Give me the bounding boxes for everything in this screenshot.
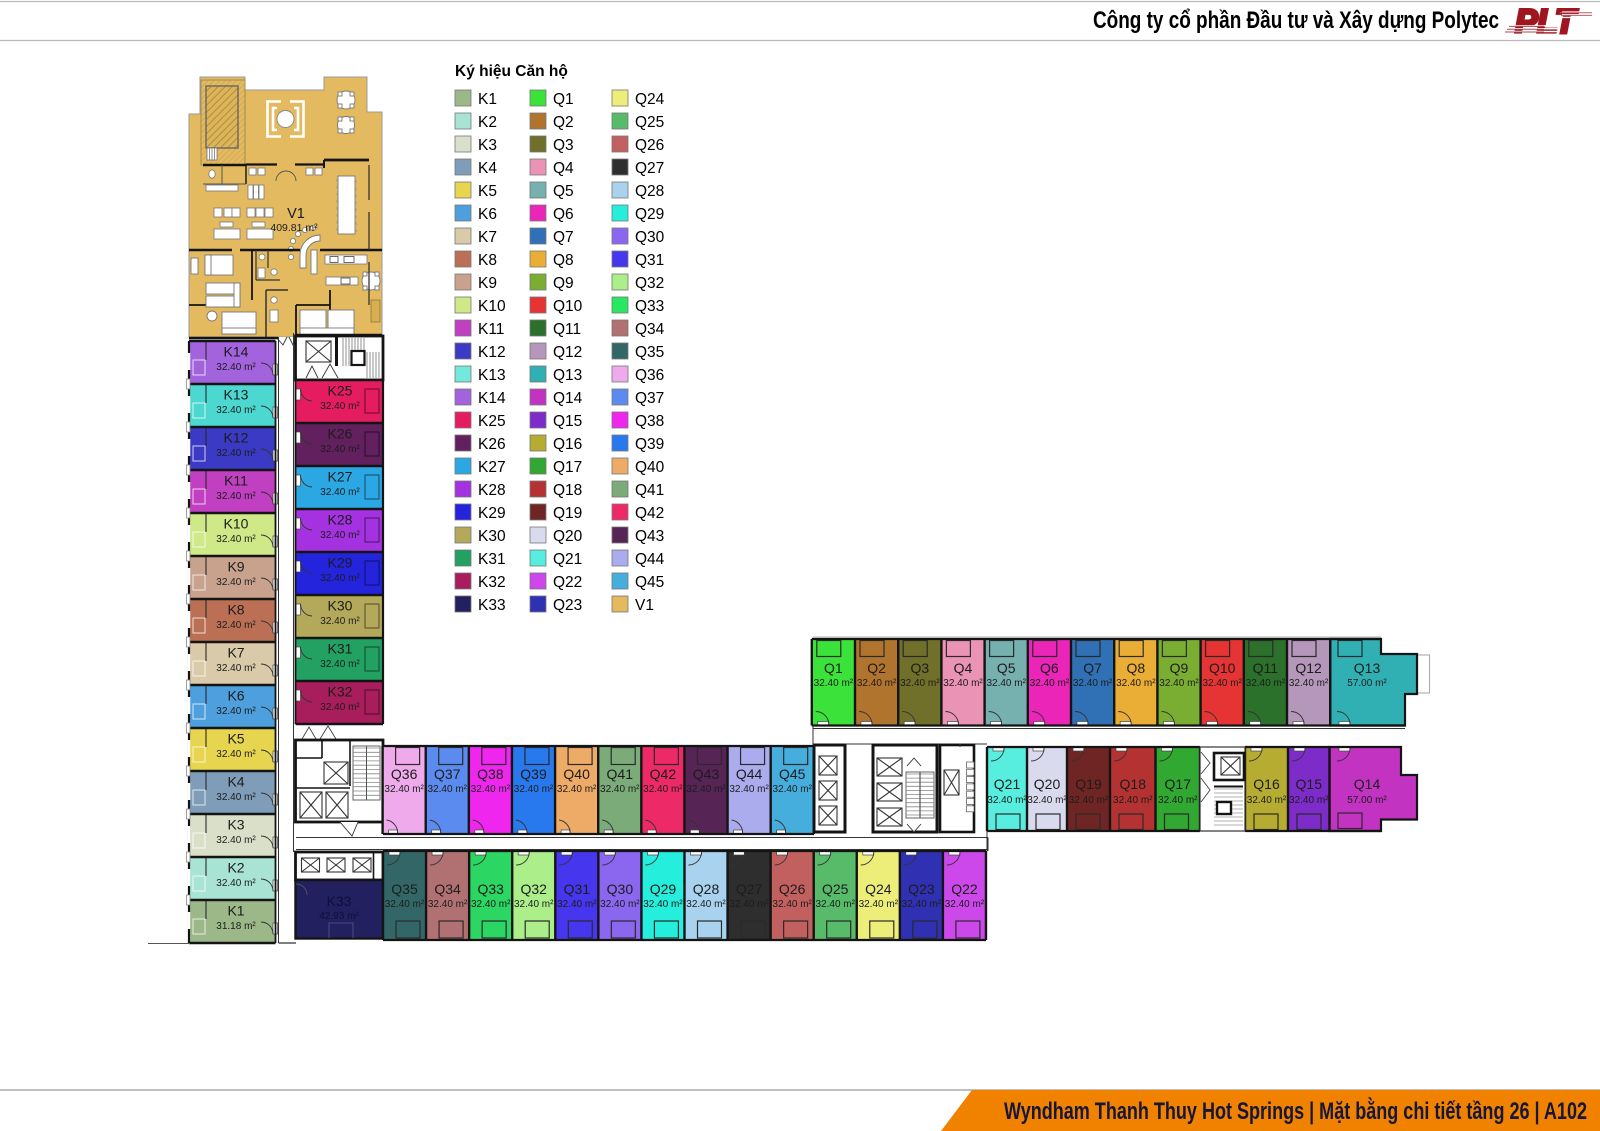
svg-text:32.40 m²: 32.40 m² [320, 444, 360, 455]
svg-text:K1: K1 [227, 903, 244, 919]
svg-text:32.40 m²: 32.40 m² [987, 795, 1027, 806]
svg-text:Q14: Q14 [1354, 776, 1381, 792]
svg-text:32.40 m²: 32.40 m² [320, 702, 360, 713]
svg-text:Q13: Q13 [1354, 660, 1381, 676]
svg-text:32.40 m²: 32.40 m² [1030, 678, 1070, 689]
svg-text:K10: K10 [478, 298, 506, 315]
svg-text:K14: K14 [478, 390, 506, 407]
svg-text:Q6: Q6 [553, 206, 574, 223]
svg-text:K12: K12 [478, 344, 506, 361]
svg-text:Q28: Q28 [635, 183, 664, 200]
svg-text:32.40 m²: 32.40 m² [320, 616, 360, 627]
svg-text:32.40 m²: 32.40 m² [1289, 795, 1329, 806]
svg-text:Q40: Q40 [563, 766, 590, 782]
svg-text:32.40 m²: 32.40 m² [216, 749, 256, 760]
svg-text:32.40 m²: 32.40 m² [1116, 678, 1156, 689]
svg-text:32.40 m²: 32.40 m² [773, 784, 813, 795]
svg-text:32.40 m²: 32.40 m² [1246, 678, 1286, 689]
svg-text:32.40 m²: 32.40 m² [428, 899, 468, 910]
svg-text:32.40 m²: 32.40 m² [986, 678, 1026, 689]
svg-text:Q24: Q24 [865, 881, 892, 897]
svg-text:Q40: Q40 [635, 459, 665, 476]
svg-text:32.40 m²: 32.40 m² [772, 899, 812, 910]
svg-text:32.40 m²: 32.40 m² [1247, 795, 1287, 806]
svg-text:K7: K7 [478, 229, 497, 246]
svg-text:32.40 m²: 32.40 m² [686, 899, 726, 910]
svg-text:409.81 m²: 409.81 m² [270, 222, 318, 234]
svg-text:32.40 m²: 32.40 m² [900, 678, 940, 689]
svg-text:Q3: Q3 [910, 660, 929, 676]
svg-text:Q30: Q30 [607, 881, 634, 897]
svg-text:32.40 m²: 32.40 m² [428, 784, 468, 795]
svg-text:Q45: Q45 [779, 766, 806, 782]
svg-text:Q34: Q34 [434, 881, 461, 897]
svg-text:32.40 m²: 32.40 m² [1159, 678, 1199, 689]
svg-text:Q28: Q28 [693, 881, 720, 897]
svg-text:Q22: Q22 [951, 881, 978, 897]
svg-text:32.40 m²: 32.40 m² [216, 620, 256, 631]
svg-text:Q26: Q26 [779, 881, 806, 897]
svg-text:Q1: Q1 [553, 91, 574, 108]
svg-text:Q26: Q26 [635, 137, 664, 154]
svg-text:Q8: Q8 [1126, 660, 1145, 676]
svg-text:Q27: Q27 [736, 881, 763, 897]
svg-text:Q18: Q18 [553, 482, 582, 499]
svg-text:K29: K29 [328, 555, 353, 571]
svg-text:K33: K33 [478, 597, 506, 614]
svg-text:Q17: Q17 [1165, 776, 1192, 792]
svg-text:K5: K5 [227, 731, 244, 747]
svg-text:32.40 m²: 32.40 m² [216, 706, 256, 717]
svg-text:32.40 m²: 32.40 m² [471, 784, 511, 795]
svg-text:K25: K25 [478, 413, 506, 430]
svg-text:Q3: Q3 [553, 137, 574, 154]
svg-text:K13: K13 [478, 367, 506, 384]
svg-text:K9: K9 [478, 275, 497, 292]
svg-text:Q17: Q17 [553, 459, 582, 476]
svg-text:Q11: Q11 [1253, 660, 1279, 676]
svg-text:32.40 m²: 32.40 m² [643, 784, 683, 795]
svg-text:32.40 m²: 32.40 m² [216, 577, 256, 588]
svg-text:Q4: Q4 [553, 160, 574, 177]
svg-text:Q15: Q15 [553, 413, 582, 430]
svg-text:Q37: Q37 [434, 766, 461, 782]
svg-text:K2: K2 [478, 114, 497, 131]
svg-text:Q31: Q31 [564, 881, 591, 897]
svg-text:Q44: Q44 [635, 551, 665, 568]
svg-text:K8: K8 [227, 602, 244, 618]
svg-text:Ký hiệu Căn hộ: Ký hiệu Căn hộ [455, 63, 568, 80]
svg-text:Q16: Q16 [553, 436, 582, 453]
svg-text:32.40 m²: 32.40 m² [216, 448, 256, 459]
svg-text:K3: K3 [478, 137, 497, 154]
svg-text:Q4: Q4 [954, 660, 973, 676]
svg-text:K4: K4 [478, 160, 497, 177]
svg-text:Q1: Q1 [824, 660, 843, 676]
svg-text:K1: K1 [478, 91, 497, 108]
svg-text:K26: K26 [328, 426, 353, 442]
svg-text:Q33: Q33 [477, 881, 504, 897]
svg-text:Q34: Q34 [635, 321, 665, 338]
svg-text:32.40 m²: 32.40 m² [216, 878, 256, 889]
svg-text:31.18 m²: 31.18 m² [216, 921, 256, 932]
svg-text:32.40 m²: 32.40 m² [216, 835, 256, 846]
svg-text:32.40 m²: 32.40 m² [385, 899, 425, 910]
svg-text:Q9: Q9 [1170, 660, 1189, 676]
svg-text:32.40 m²: 32.40 m² [1158, 795, 1198, 806]
svg-text:Q22: Q22 [553, 574, 582, 591]
svg-text:K4: K4 [227, 774, 244, 790]
svg-text:K25: K25 [328, 383, 353, 399]
svg-text:57.00 m²: 57.00 m² [1347, 795, 1387, 806]
svg-text:K11: K11 [224, 473, 248, 489]
svg-text:Q36: Q36 [391, 766, 418, 782]
svg-text:Q29: Q29 [650, 881, 677, 897]
svg-text:32.40 m²: 32.40 m² [729, 899, 769, 910]
svg-text:Q31: Q31 [635, 252, 664, 269]
svg-text:Q44: Q44 [736, 766, 763, 782]
svg-text:Q23: Q23 [908, 881, 935, 897]
svg-text:K31: K31 [478, 551, 506, 568]
svg-text:K3: K3 [227, 817, 244, 833]
svg-text:32.40 m²: 32.40 m² [216, 663, 256, 674]
svg-text:32.40 m²: 32.40 m² [814, 678, 854, 689]
svg-text:K7: K7 [227, 645, 244, 661]
svg-text:Q7: Q7 [553, 229, 574, 246]
svg-text:32.40 m²: 32.40 m² [216, 792, 256, 803]
svg-text:42.93 m²: 42.93 m² [319, 911, 359, 922]
svg-text:Q2: Q2 [553, 114, 574, 131]
svg-text:Q5: Q5 [997, 660, 1016, 676]
svg-text:32.40 m²: 32.40 m² [557, 899, 597, 910]
svg-text:Q6: Q6 [1040, 660, 1059, 676]
svg-text:Q9: Q9 [553, 275, 574, 292]
svg-text:32.40 m²: 32.40 m² [320, 573, 360, 584]
svg-text:32.40 m²: 32.40 m² [902, 899, 942, 910]
svg-text:K29: K29 [478, 505, 506, 522]
svg-text:V1: V1 [635, 597, 654, 614]
svg-text:K26: K26 [478, 436, 506, 453]
svg-text:K11: K11 [478, 321, 504, 338]
svg-text:Q25: Q25 [635, 114, 664, 131]
svg-text:Q43: Q43 [635, 528, 664, 545]
svg-text:Q37: Q37 [635, 390, 664, 407]
svg-text:K9: K9 [227, 559, 244, 575]
svg-text:32.40 m²: 32.40 m² [384, 784, 424, 795]
svg-text:Q10: Q10 [1209, 660, 1236, 676]
svg-text:K2: K2 [227, 860, 244, 876]
svg-text:32.40 m²: 32.40 m² [943, 678, 983, 689]
svg-text:Q45: Q45 [635, 574, 664, 591]
svg-text:K27: K27 [328, 469, 353, 485]
svg-text:32.40 m²: 32.40 m² [686, 784, 726, 795]
svg-text:K32: K32 [478, 574, 506, 591]
svg-text:32.40 m²: 32.40 m² [216, 491, 256, 502]
svg-text:Q30: Q30 [635, 229, 665, 246]
svg-text:32.40 m²: 32.40 m² [1202, 678, 1242, 689]
svg-text:K5: K5 [478, 183, 497, 200]
svg-text:Q18: Q18 [1120, 776, 1147, 792]
svg-text:Q35: Q35 [391, 881, 418, 897]
svg-text:32.40 m²: 32.40 m² [557, 784, 597, 795]
svg-text:Q39: Q39 [520, 766, 547, 782]
svg-text:57.00 m²: 57.00 m² [1347, 678, 1387, 689]
svg-text:Q2: Q2 [867, 660, 886, 676]
svg-text:32.40 m²: 32.40 m² [1027, 795, 1067, 806]
svg-text:Q23: Q23 [553, 597, 582, 614]
svg-text:K8: K8 [478, 252, 497, 269]
svg-text:Q25: Q25 [822, 881, 849, 897]
svg-text:K27: K27 [478, 459, 506, 476]
svg-text:Q42: Q42 [650, 766, 677, 782]
svg-text:Q29: Q29 [635, 206, 664, 223]
svg-text:Q32: Q32 [521, 881, 548, 897]
svg-text:32.40 m²: 32.40 m² [1069, 795, 1109, 806]
svg-text:32.40 m²: 32.40 m² [320, 659, 360, 670]
svg-text:Q35: Q35 [635, 344, 664, 361]
svg-text:Q42: Q42 [635, 505, 664, 522]
svg-text:K6: K6 [227, 688, 244, 704]
svg-text:Q8: Q8 [553, 252, 574, 269]
svg-text:Q11: Q11 [553, 321, 581, 338]
svg-text:32.40 m²: 32.40 m² [216, 362, 256, 373]
svg-text:Q32: Q32 [635, 275, 664, 292]
svg-text:32.40 m²: 32.40 m² [471, 899, 511, 910]
svg-text:Q43: Q43 [693, 766, 720, 782]
svg-text:32.40 m²: 32.40 m² [320, 401, 360, 412]
svg-text:Q41: Q41 [607, 766, 634, 782]
svg-text:32.40 m²: 32.40 m² [216, 534, 256, 545]
svg-text:Q21: Q21 [553, 551, 582, 568]
svg-text:Q15: Q15 [1296, 776, 1323, 792]
svg-text:Q12: Q12 [1295, 660, 1322, 676]
svg-text:32.40 m²: 32.40 m² [600, 784, 640, 795]
svg-text:32.40 m²: 32.40 m² [729, 784, 769, 795]
svg-text:Q21: Q21 [994, 776, 1021, 792]
svg-text:32.40 m²: 32.40 m² [514, 899, 554, 910]
svg-text:Q16: Q16 [1253, 776, 1280, 792]
svg-text:Q39: Q39 [635, 436, 664, 453]
svg-text:32.40 m²: 32.40 m² [1289, 678, 1329, 689]
svg-text:Q10: Q10 [553, 298, 583, 315]
svg-text:Q38: Q38 [635, 413, 664, 430]
svg-text:Q20: Q20 [1034, 776, 1061, 792]
svg-text:32.40 m²: 32.40 m² [514, 784, 554, 795]
svg-text:32.40 m²: 32.40 m² [216, 405, 256, 416]
svg-text:Q19: Q19 [1075, 776, 1102, 792]
svg-text:K28: K28 [478, 482, 506, 499]
svg-text:32.40 m²: 32.40 m² [643, 899, 683, 910]
svg-text:32.40 m²: 32.40 m² [859, 899, 899, 910]
svg-text:K6: K6 [478, 206, 497, 223]
svg-text:Q5: Q5 [553, 183, 574, 200]
svg-text:K28: K28 [328, 512, 353, 528]
svg-text:Q14: Q14 [553, 390, 583, 407]
svg-text:32.40 m²: 32.40 m² [857, 678, 897, 689]
svg-text:K13: K13 [224, 387, 249, 403]
svg-text:Q27: Q27 [635, 160, 664, 177]
svg-text:K30: K30 [478, 528, 506, 545]
svg-text:Q38: Q38 [477, 766, 504, 782]
svg-text:Q20: Q20 [553, 528, 583, 545]
svg-text:32.40 m²: 32.40 m² [600, 899, 640, 910]
svg-text:Wyndham Thanh Thuy Hot Springs: Wyndham Thanh Thuy Hot Springs | Mặt bằn… [1004, 1097, 1587, 1125]
svg-text:K31: K31 [328, 641, 353, 657]
svg-text:Q33: Q33 [635, 298, 664, 315]
svg-text:Q24: Q24 [635, 91, 665, 108]
svg-text:32.40 m²: 32.40 m² [1073, 678, 1113, 689]
svg-text:Q12: Q12 [553, 344, 582, 361]
svg-text:K33: K33 [327, 893, 352, 909]
svg-text:32.40 m²: 32.40 m² [320, 487, 360, 498]
svg-text:K32: K32 [328, 684, 353, 700]
svg-text:32.40 m²: 32.40 m² [945, 899, 985, 910]
svg-text:32.40 m²: 32.40 m² [816, 899, 856, 910]
svg-text:V1: V1 [287, 206, 305, 222]
svg-text:K12: K12 [224, 430, 249, 446]
svg-text:Q13: Q13 [553, 367, 582, 384]
svg-text:32.40 m²: 32.40 m² [320, 530, 360, 541]
svg-text:Công ty cổ phần Đầu tư và Xây: Công ty cổ phần Đầu tư và Xây dựng Polyt… [1093, 7, 1499, 34]
svg-text:PLT: PLT [1515, 3, 1579, 41]
svg-text:Q36: Q36 [635, 367, 664, 384]
svg-text:Q19: Q19 [553, 505, 582, 522]
svg-text:K30: K30 [328, 598, 353, 614]
svg-text:K10: K10 [224, 516, 249, 532]
svg-text:Q7: Q7 [1083, 660, 1102, 676]
svg-text:Q41: Q41 [635, 482, 664, 499]
svg-text:32.40 m²: 32.40 m² [1113, 795, 1153, 806]
svg-text:K14: K14 [224, 344, 249, 360]
